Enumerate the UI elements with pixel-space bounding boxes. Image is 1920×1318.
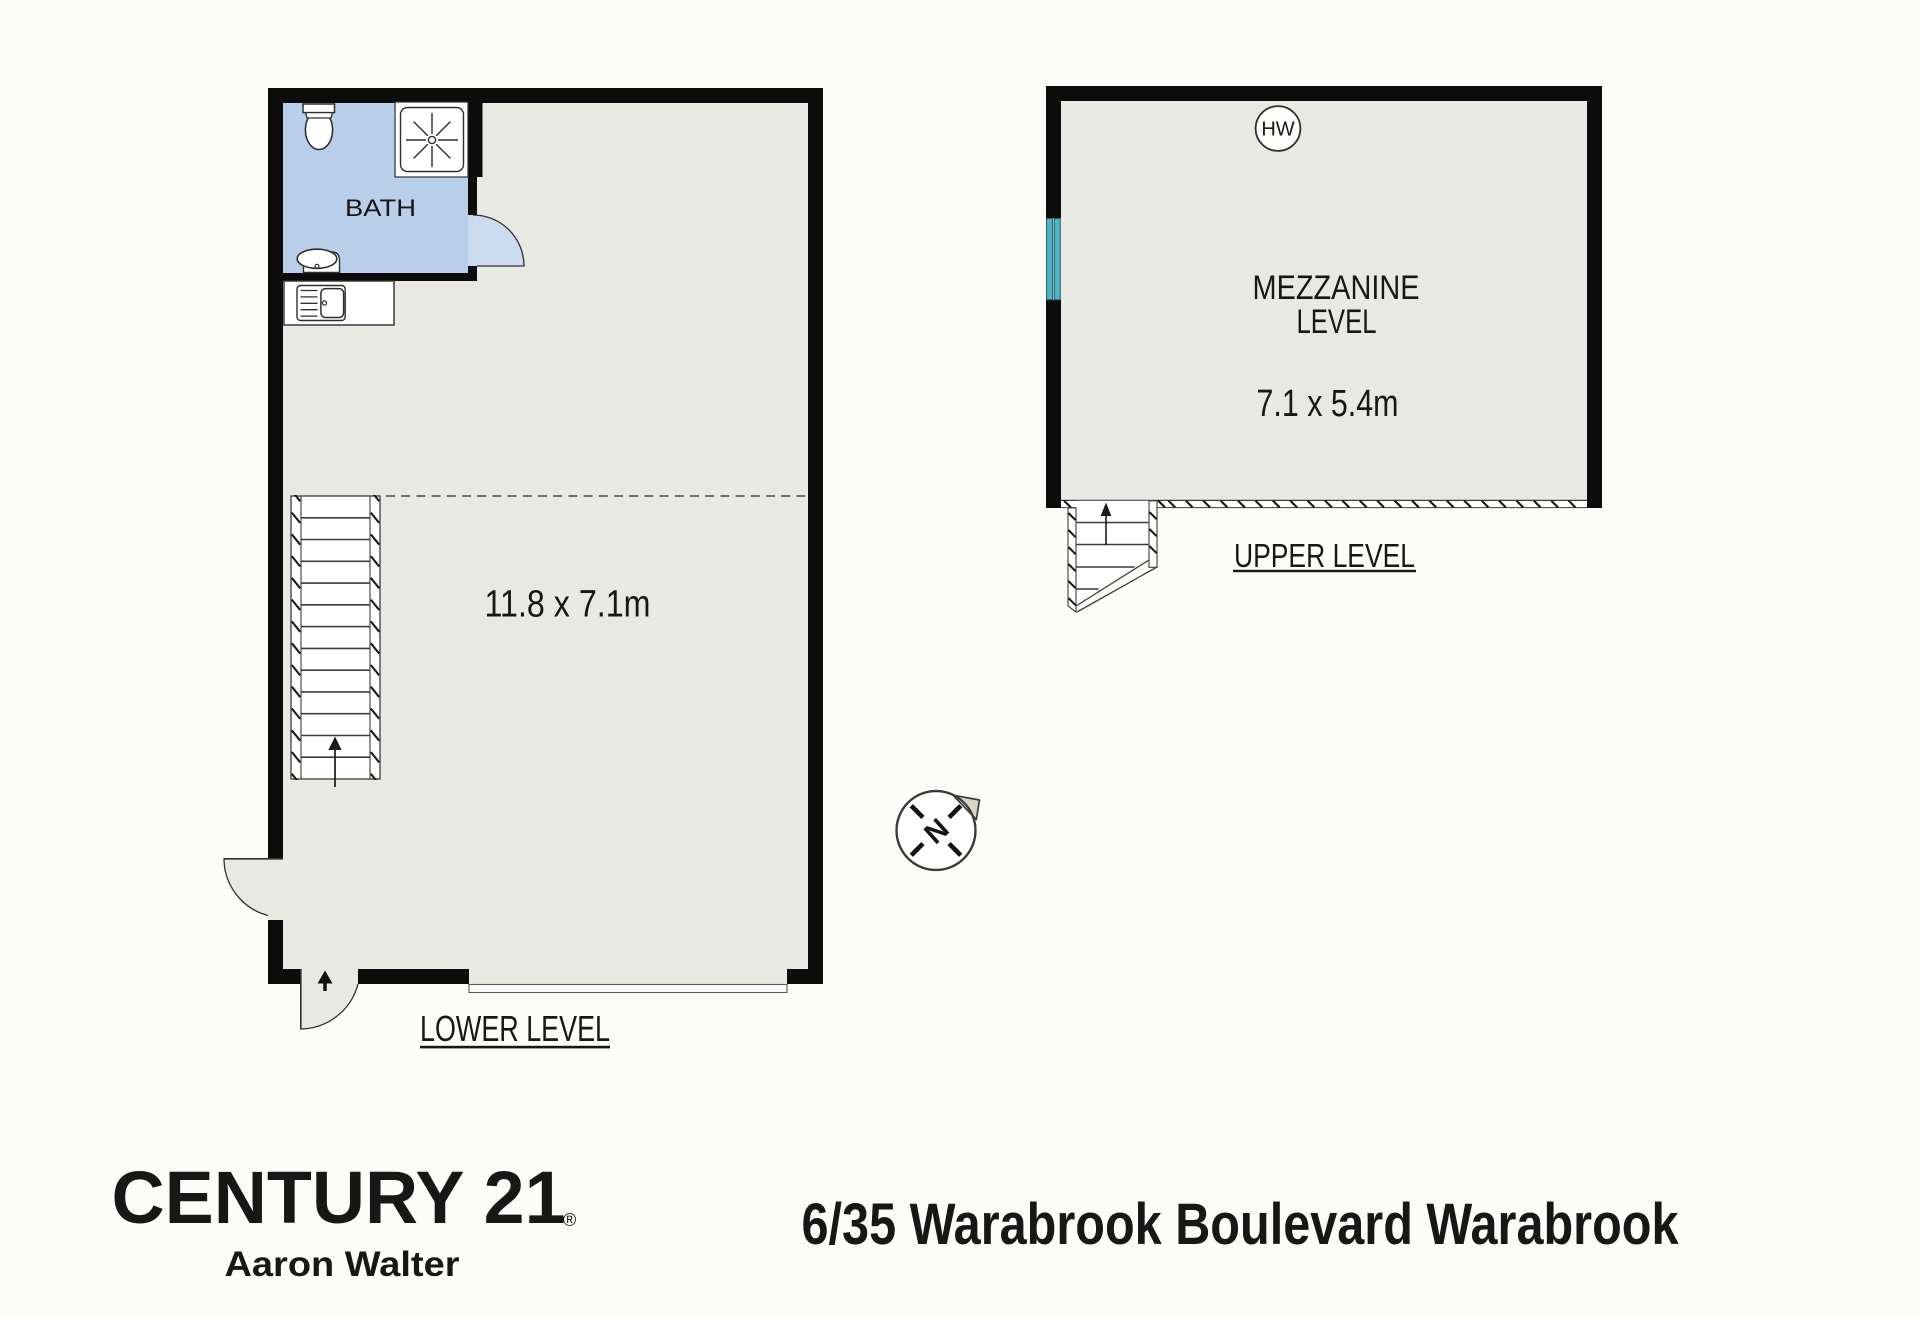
- svg-text:BATH: BATH: [345, 195, 416, 222]
- svg-text:®: ®: [563, 1210, 576, 1230]
- svg-text:LOWER LEVEL: LOWER LEVEL: [420, 1008, 610, 1049]
- svg-text:HW: HW: [1261, 119, 1294, 141]
- svg-text:MEZZANINE: MEZZANINE: [1253, 269, 1420, 307]
- svg-text:UPPER LEVEL: UPPER LEVEL: [1234, 537, 1415, 574]
- svg-text:7.1 x 5.4m: 7.1 x 5.4m: [1257, 383, 1399, 425]
- svg-text:LEVEL: LEVEL: [1297, 303, 1377, 341]
- svg-text:CENTURY 21: CENTURY 21: [112, 1156, 566, 1239]
- svg-text:Aaron Walter: Aaron Walter: [225, 1245, 460, 1284]
- svg-text:11.8 x 7.1m: 11.8 x 7.1m: [485, 584, 651, 626]
- svg-text:6/35 Warabrook Boulevard Warab: 6/35 Warabrook Boulevard Warabrook: [802, 1192, 1680, 1257]
